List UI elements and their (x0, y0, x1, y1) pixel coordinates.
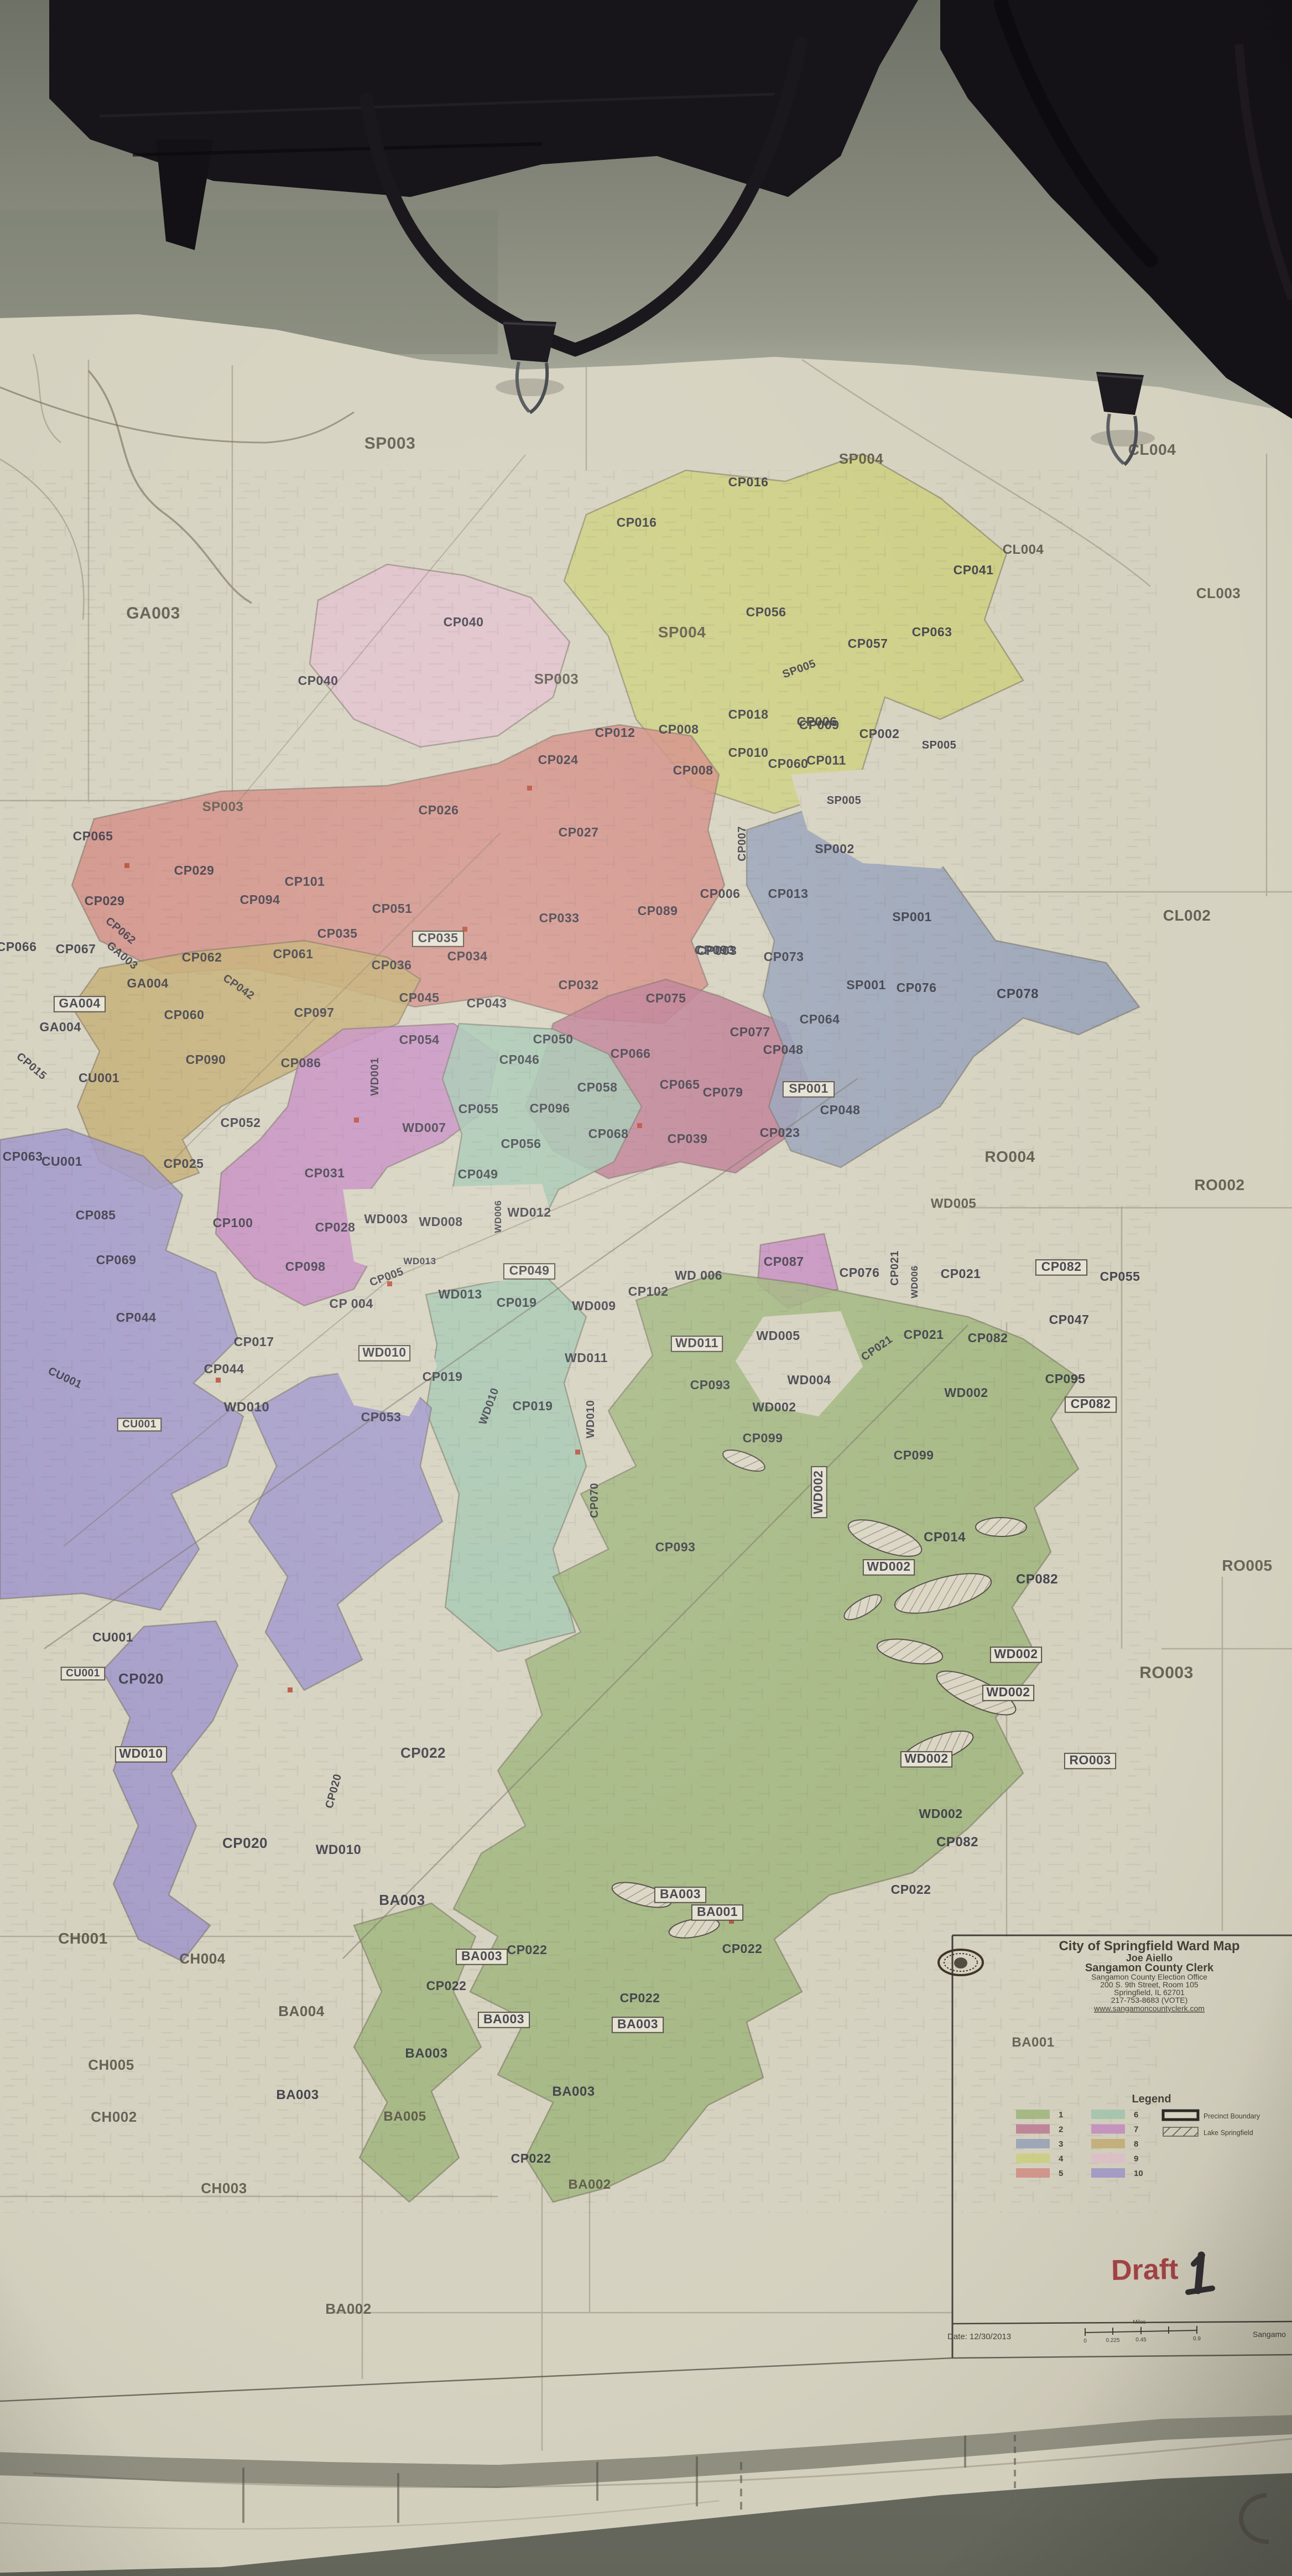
photo-canvas: SP003GA003CL004CL004CL003SP004SP004SP003… (0, 0, 1292, 2576)
photo-vignette (0, 0, 1292, 2576)
photo-of-ward-map: SP003GA003CL004CL004CL003SP004SP004SP003… (0, 0, 1292, 2576)
